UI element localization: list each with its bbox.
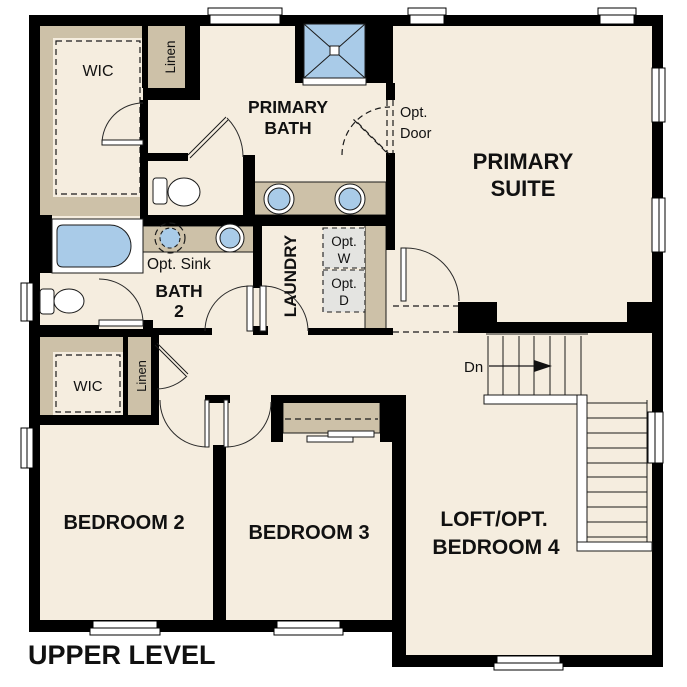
bathtub [57, 225, 131, 267]
stair-rail-side [577, 395, 587, 551]
bath2-label-line1: BATH [155, 281, 202, 301]
primary-bath-label-line2: BATH [264, 118, 311, 138]
wic-primary-interior [53, 38, 143, 197]
opt-sink-label: Opt. Sink [147, 256, 211, 273]
laundry-label: LAUNDRY [281, 234, 300, 317]
opt-sink-dashed [160, 228, 180, 248]
bedroom2-door-leaf [205, 400, 209, 447]
primary-bath-label-line1: PRIMARY [248, 97, 328, 117]
bedroom3-label: BEDROOM 3 [248, 522, 369, 544]
primary-sink-left [268, 188, 290, 210]
primary-suite-label-line2: SUITE [491, 176, 556, 201]
stair-rail-top [484, 395, 587, 404]
bath2-sink [220, 228, 240, 248]
bath2-toilet-bowl [54, 289, 84, 313]
bedroom3-closet-slider-b [328, 431, 374, 437]
opt-washer-label-line1: Opt. [331, 234, 357, 249]
laundry-door-leaf [260, 286, 266, 331]
primary-suite-door-leaf [401, 248, 406, 301]
primary-wc-toilet-tank [153, 178, 167, 204]
bath2-door-leaf [247, 286, 253, 331]
linen-lower-label: Linen [134, 360, 149, 392]
wic-primary-door-leaf [102, 140, 143, 145]
bedroom3-closet-shelf [283, 398, 380, 433]
opt-dryer-label-line1: Opt. [331, 276, 357, 291]
floorplan-upper-level: WIC Linen PRIMARY BATH Opt. Door PRIMARY… [0, 0, 687, 687]
stair-rail-bottom [577, 542, 652, 551]
primary-suite-label-line1: PRIMARY [473, 149, 574, 174]
opt-door-label-line2: Door [400, 126, 432, 142]
shower-drain-icon [330, 46, 339, 55]
bath2-wc-door-leaf [99, 320, 143, 326]
bath2-toilet-tank [40, 289, 54, 314]
wic-primary-label: WIC [82, 63, 113, 80]
opt-dryer-label-line2: D [339, 293, 349, 308]
linen-upper-label: Linen [163, 40, 178, 73]
opt-washer-label-line2: W [338, 251, 351, 266]
primary-wc-toilet-bowl [168, 178, 200, 206]
loft-label-line1: LOFT/OPT. [440, 508, 547, 531]
bedroom3-door-leaf [224, 400, 228, 447]
laundry-wall-poche [365, 220, 386, 330]
wic-bedroom2-label: WIC [73, 378, 102, 395]
loft-label-line2: BEDROOM 4 [432, 536, 560, 559]
bath2-label-line2: 2 [174, 301, 184, 321]
stairs-down-label: Dn [464, 359, 483, 376]
opt-door-label-line1: Opt. [400, 105, 427, 121]
shower-curb [303, 78, 366, 85]
primary-sink-right [339, 188, 361, 210]
floorplan-svg: WIC Linen PRIMARY BATH Opt. Door PRIMARY… [0, 0, 687, 687]
bedroom2-label: BEDROOM 2 [63, 512, 184, 534]
plan-title: UPPER LEVEL [28, 640, 216, 670]
